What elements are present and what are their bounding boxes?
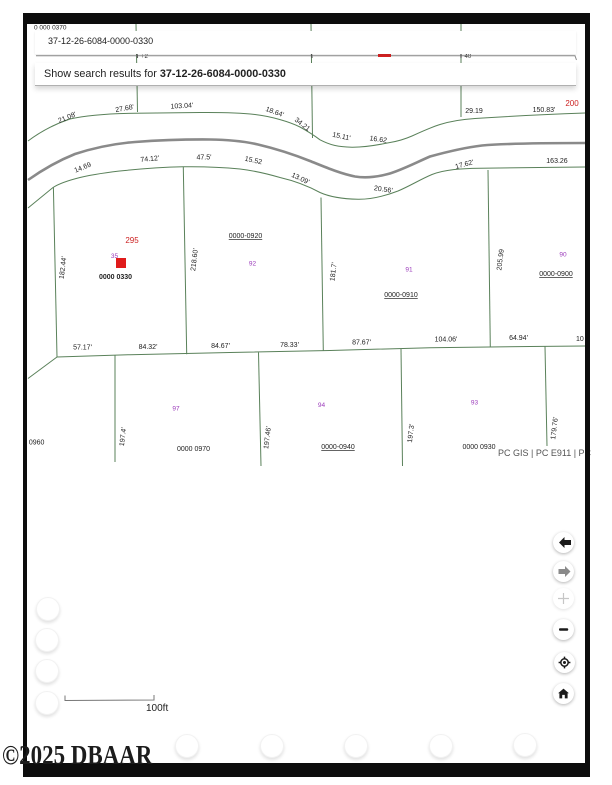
svg-text:103.04': 103.04' <box>170 102 193 110</box>
svg-text:18.64': 18.64' <box>264 106 284 119</box>
svg-text:197.3': 197.3' <box>407 424 416 444</box>
svg-text:0000-0910: 0000-0910 <box>384 292 418 299</box>
svg-text:197.46': 197.46' <box>263 426 273 449</box>
svg-text:10: 10 <box>576 336 584 343</box>
svg-text:—: — <box>315 54 321 60</box>
svg-text:PC GIS | PC E911 | PC: PC GIS | PC E911 | PC <box>498 448 592 458</box>
svg-text:21.08': 21.08' <box>57 111 77 125</box>
svg-text:182.44': 182.44' <box>59 256 69 279</box>
svg-text:47.5': 47.5' <box>197 155 212 162</box>
svg-text:29.19: 29.19 <box>465 108 483 115</box>
svg-text:104.06': 104.06' <box>435 337 458 344</box>
svg-text:205.99: 205.99 <box>496 249 506 271</box>
svg-text:218.60': 218.60' <box>190 248 200 271</box>
svg-text:94: 94 <box>318 402 326 409</box>
svg-text:93: 93 <box>471 400 479 407</box>
svg-text:27.68': 27.68' <box>115 104 135 114</box>
svg-text:20.56': 20.56' <box>373 185 393 195</box>
svg-text:87.67': 87.67' <box>352 340 371 347</box>
svg-text:91: 91 <box>405 267 413 274</box>
svg-text:15.11': 15.11' <box>332 132 351 143</box>
svg-text:16.62: 16.62 <box>369 135 387 144</box>
svg-text:64.94': 64.94' <box>509 335 528 342</box>
svg-text:84.32': 84.32' <box>139 344 158 351</box>
svg-text:57.17': 57.17' <box>73 345 92 352</box>
svg-text:181.7': 181.7' <box>329 262 338 282</box>
svg-text:40: 40 <box>465 54 472 60</box>
svg-text:0000-0940: 0000-0940 <box>321 444 355 451</box>
svg-text:74.12': 74.12' <box>140 155 159 164</box>
svg-text:78.33': 78.33' <box>280 342 299 349</box>
svg-text:0000 0930: 0000 0930 <box>462 444 495 451</box>
svg-text:200: 200 <box>565 99 579 108</box>
svg-text:197.4': 197.4' <box>119 427 128 447</box>
svg-text:84.67': 84.67' <box>211 343 230 350</box>
svg-text:0000-0920: 0000-0920 <box>229 233 263 240</box>
svg-text:0000 0330: 0000 0330 <box>99 274 132 281</box>
svg-text:150.83': 150.83' <box>533 107 556 114</box>
svg-text:0000-0900: 0000-0900 <box>539 271 573 278</box>
svg-text:0000 0970: 0000 0970 <box>177 446 210 453</box>
svg-text:14.69: 14.69 <box>73 162 92 175</box>
svg-text:13.09': 13.09' <box>290 172 310 186</box>
svg-text:179.76': 179.76' <box>550 417 560 440</box>
svg-text:92: 92 <box>249 261 257 268</box>
svg-text:+2: +2 <box>141 54 149 60</box>
svg-text:295: 295 <box>125 236 139 245</box>
svg-text:90: 90 <box>559 252 567 259</box>
svg-text:15.52: 15.52 <box>244 156 263 167</box>
svg-text:163.26: 163.26 <box>546 158 568 165</box>
svg-text:97: 97 <box>172 406 180 413</box>
